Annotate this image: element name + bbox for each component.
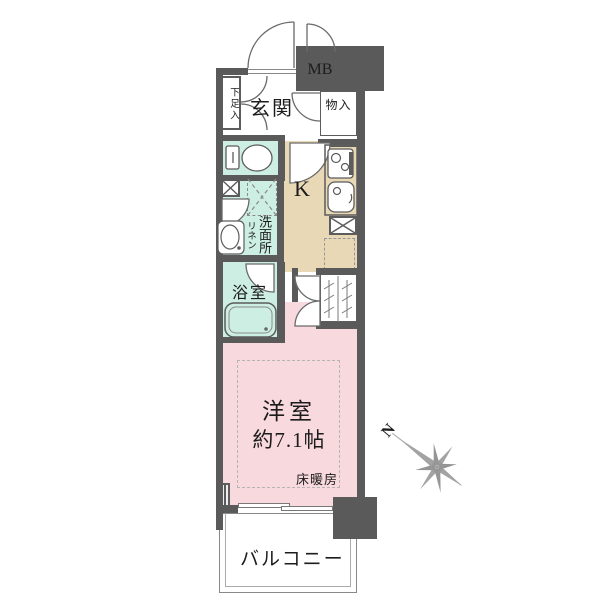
wall-bottom-left bbox=[216, 505, 238, 513]
wall-hall-toilet bbox=[216, 135, 285, 141]
wall-bath-right bbox=[277, 262, 285, 343]
entrance-door-sill bbox=[246, 69, 296, 74]
pillar-bottom-right bbox=[333, 497, 377, 539]
wall-under-storage bbox=[318, 139, 357, 147]
vestibule-floor bbox=[284, 272, 316, 302]
meter-box-label: MB bbox=[303, 53, 337, 87]
balcony-label: バルコニー bbox=[240, 544, 336, 571]
main-room-label: 洋室 bbox=[247, 392, 331, 426]
toilet-floor bbox=[223, 141, 278, 175]
wall-washroom-right bbox=[277, 175, 284, 262]
fridge-space-box bbox=[324, 238, 355, 270]
entrance-label: 玄関 bbox=[244, 92, 300, 121]
balcony-window-panel-right bbox=[281, 506, 333, 511]
wall-toilet-washroom bbox=[216, 175, 285, 181]
wall-top-left bbox=[216, 68, 248, 75]
wall-right bbox=[357, 88, 365, 500]
bathroom-label: 浴室 bbox=[224, 279, 276, 303]
kitchen-label: K bbox=[288, 176, 316, 202]
main-room-size-label: 約7.1帖 bbox=[237, 424, 341, 454]
wall-bath-bottom bbox=[216, 337, 285, 343]
linen-label: リネン bbox=[245, 213, 257, 257]
floor-plan: MB 下足入 玄関 物入 K 洗面所 リネン 浴室 洋室 約7.1帖 床暖房 バ… bbox=[0, 0, 614, 611]
washer-space-box bbox=[221, 179, 240, 197]
wall-vestibule-stub bbox=[292, 268, 298, 302]
compass-north-label: N bbox=[376, 418, 401, 443]
wall-above-closet bbox=[316, 268, 357, 275]
washroom-label: 洗面所 bbox=[257, 208, 274, 260]
pipe-space-box bbox=[329, 216, 357, 235]
shoe-cabinet-label: 下足入 bbox=[222, 79, 240, 129]
wall-balcony-left-stub bbox=[216, 513, 223, 530]
wall-below-closet bbox=[316, 322, 357, 329]
floor-heating-label: 床暖房 bbox=[292, 469, 342, 488]
storage-label: 物入 bbox=[320, 96, 357, 113]
closet-box bbox=[320, 274, 357, 322]
entrance-door-arc bbox=[248, 22, 294, 68]
wall-toilet-right bbox=[278, 141, 285, 175]
